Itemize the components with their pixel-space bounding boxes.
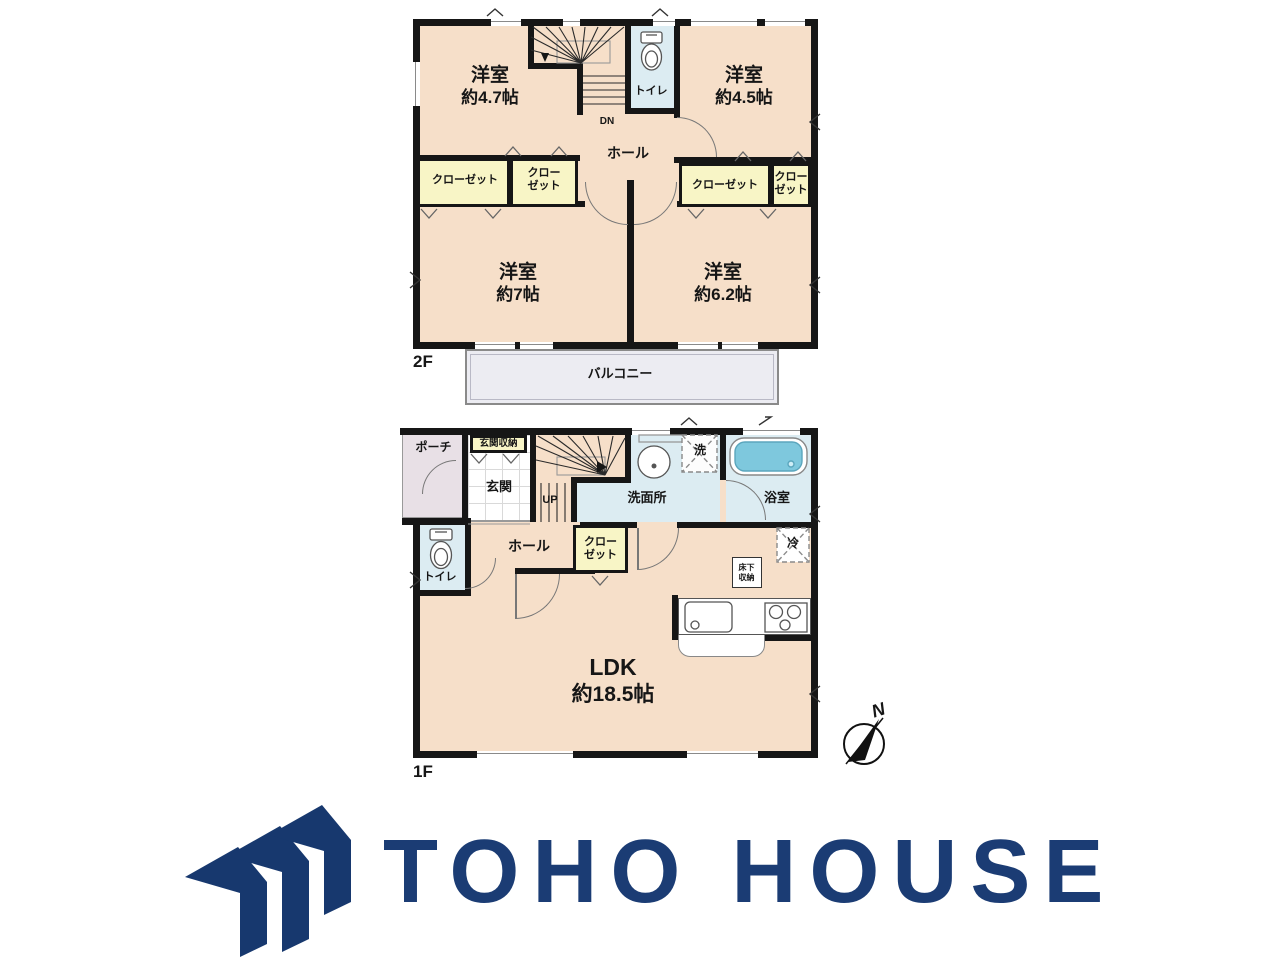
- washroom-label: 洗面所: [607, 490, 687, 506]
- room-name: 洋室: [684, 65, 804, 88]
- toho-house-logo-text: TOHO HOUSE: [383, 827, 1116, 917]
- window: [743, 428, 800, 435]
- entrance-step-line: [468, 520, 530, 522]
- window-balcony-door: [520, 342, 553, 349]
- closet-label-2line: クロー ゼット: [771, 171, 811, 197]
- window: [563, 19, 580, 26]
- toho-house-logo-mark: [183, 799, 355, 960]
- closet-label: クローゼット: [679, 179, 771, 192]
- wall-segment: [400, 428, 413, 435]
- entrance-storage-box: 玄関収納: [470, 435, 527, 453]
- window: [413, 62, 420, 106]
- room-label-bedroom-7: 洋室 約7帖: [458, 262, 578, 305]
- ldk-name: LDK: [533, 654, 693, 682]
- window: [653, 19, 675, 26]
- window-balcony-door: [722, 342, 758, 349]
- porch-label: ポーチ: [402, 440, 465, 454]
- closet-line1: クロー: [510, 167, 578, 180]
- underfloor-storage-label: 床下 収納: [733, 563, 760, 583]
- room-size: 約4.5帖: [684, 88, 804, 108]
- room-name: 洋室: [458, 262, 578, 285]
- closet-line1: クロー: [771, 171, 811, 184]
- entrance-label: 玄関: [469, 479, 529, 495]
- closet-line2: ゼット: [576, 549, 625, 562]
- room-size: 約7帖: [458, 285, 578, 305]
- window-balcony-door: [475, 342, 515, 349]
- closet-line2: ゼット: [510, 180, 578, 193]
- window: [477, 751, 573, 758]
- entrance-storage-label: 玄関収納: [473, 438, 524, 450]
- window: [632, 428, 670, 435]
- closet-line2: ゼット: [771, 184, 811, 197]
- laundry-label: 洗: [680, 443, 720, 457]
- wall-segment: [402, 518, 471, 525]
- closet-label-2line: クロー ゼット: [510, 167, 578, 193]
- underfloor-line1: 床下: [733, 563, 760, 573]
- toilet-label-1f: トイレ: [415, 571, 465, 584]
- window-balcony-door: [678, 342, 718, 349]
- floor-plan-1f: 玄関収納 クロー ゼット 床下 収納: [413, 428, 818, 758]
- floor-tag-1f: 1F: [413, 762, 433, 782]
- room-name: 洋室: [663, 262, 783, 285]
- bathroom-label: 浴室: [737, 490, 817, 506]
- closet-label-2line: クロー ゼット: [576, 536, 625, 562]
- wall-segment: [528, 26, 534, 65]
- wall-segment: [420, 590, 471, 596]
- window: [691, 19, 757, 26]
- closet-line1: クロー: [576, 536, 625, 549]
- hall-label-1f: ホール: [489, 538, 569, 555]
- stairs-up-label: UP: [530, 494, 570, 507]
- room-name: 洋室: [430, 65, 550, 88]
- closet-1f-box: クロー ゼット: [573, 525, 628, 573]
- wall-segment: [674, 26, 680, 118]
- balcony: バルコニー: [465, 349, 779, 405]
- ldk-size: 約18.5帖: [533, 682, 693, 707]
- wall-segment: [625, 108, 680, 114]
- window: [687, 751, 758, 758]
- floorplan-page: 洋室 約4.7帖 洋室 約4.5帖 トイレ DN ホール クローゼット クロー …: [0, 0, 1280, 960]
- underfloor-line2: 収納: [733, 573, 760, 583]
- kitchen-counter: [678, 598, 811, 635]
- window: [765, 19, 805, 26]
- wall-segment: [625, 26, 631, 114]
- wall-segment: [573, 477, 628, 483]
- toilet-label-2f: トイレ: [621, 85, 681, 98]
- room-size: 約6.2帖: [663, 285, 783, 305]
- door-leaf: [515, 574, 517, 619]
- stairs-dn-label: DN: [585, 116, 629, 128]
- room-label-bedroom-6-2: 洋室 約6.2帖: [663, 262, 783, 305]
- hall-label-2f: ホール: [588, 145, 668, 162]
- floor-tag-2f: 2F: [413, 352, 433, 372]
- wall-segment: [530, 435, 536, 522]
- window: [491, 19, 521, 26]
- wall-segment: [720, 435, 726, 480]
- door-leaf: [637, 528, 639, 570]
- wall-segment: [625, 435, 631, 483]
- wall-segment: [577, 65, 583, 115]
- compass-north-label: N: [869, 699, 888, 723]
- wall-segment: [677, 522, 811, 528]
- floor-plan-2f: 洋室 約4.7帖 洋室 約4.5帖 トイレ DN ホール クローゼット クロー …: [413, 19, 818, 349]
- room-size: 約4.7帖: [430, 88, 550, 108]
- wall-segment: [627, 180, 634, 342]
- refrigerator-label: 冷: [775, 536, 811, 550]
- wall-segment: [571, 477, 577, 522]
- room-label-bedroom-4-7: 洋室 約4.7帖: [430, 65, 550, 108]
- compass-icon: [836, 698, 900, 772]
- room-label-bedroom-4-5: 洋室 約4.5帖: [684, 65, 804, 108]
- ldk-label: LDK 約18.5帖: [533, 654, 693, 707]
- balcony-label: バルコニー: [467, 366, 773, 382]
- closet-label: クローゼット: [420, 174, 510, 187]
- underfloor-storage-box: 床下 収納: [732, 557, 762, 588]
- wall-segment: [765, 635, 811, 641]
